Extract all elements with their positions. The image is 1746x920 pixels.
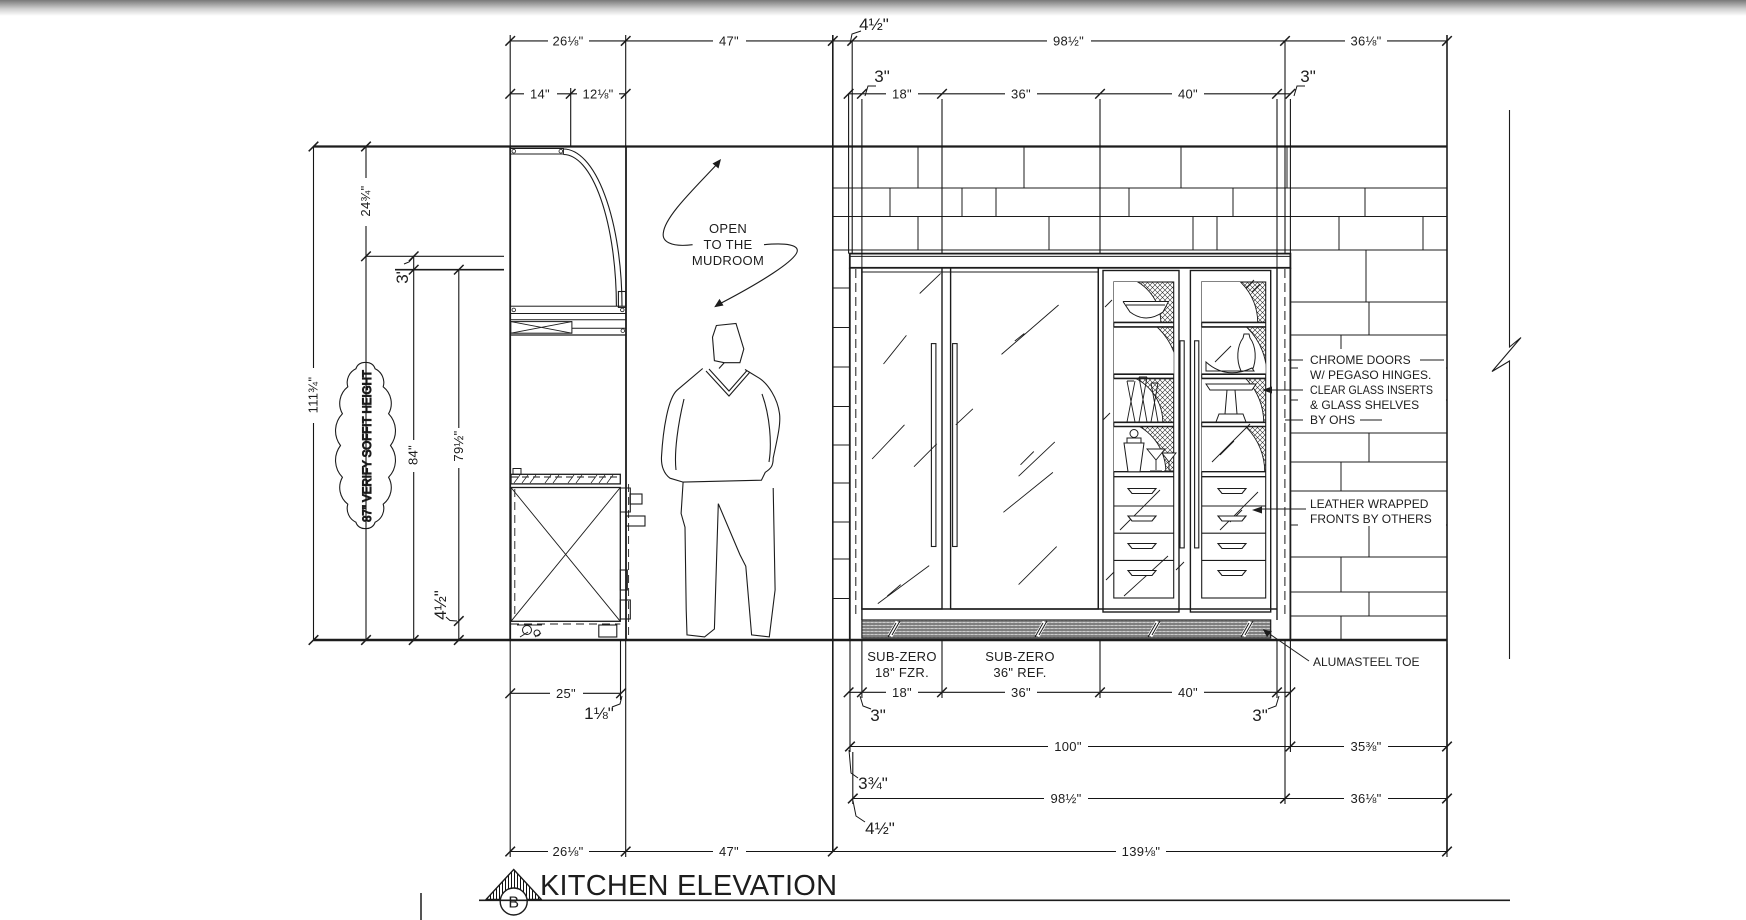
svg-text:18": 18" bbox=[892, 87, 912, 102]
svg-text:40": 40" bbox=[1178, 685, 1198, 700]
svg-text:47": 47" bbox=[719, 844, 739, 859]
svg-text:SUB-ZERO: SUB-ZERO bbox=[867, 649, 937, 664]
svg-text:3¾": 3¾" bbox=[858, 774, 888, 793]
svg-text:18": 18" bbox=[892, 685, 912, 700]
svg-text:MUDROOM: MUDROOM bbox=[692, 253, 764, 268]
svg-text:98½": 98½" bbox=[1053, 34, 1084, 49]
svg-text:CLEAR GLASS INSERTS: CLEAR GLASS INSERTS bbox=[1310, 383, 1433, 397]
svg-text:79½": 79½" bbox=[451, 430, 466, 461]
svg-text:FRONTS BY OTHERS: FRONTS BY OTHERS bbox=[1310, 512, 1432, 526]
svg-text:KITCHEN ELEVATION: KITCHEN ELEVATION bbox=[540, 870, 837, 902]
svg-text:98½": 98½" bbox=[1050, 791, 1081, 806]
svg-text:36": 36" bbox=[1011, 685, 1031, 700]
svg-text:36⅛": 36⅛" bbox=[1350, 791, 1381, 806]
svg-text:1⅛": 1⅛" bbox=[584, 704, 614, 723]
svg-text:47": 47" bbox=[719, 34, 739, 49]
svg-text:4½": 4½" bbox=[859, 15, 889, 34]
svg-text:4½": 4½" bbox=[431, 590, 450, 620]
svg-text:40": 40" bbox=[1178, 87, 1198, 102]
svg-text:36" REF.: 36" REF. bbox=[993, 665, 1046, 680]
svg-text:87" VERIFY SOFFIT HEIGHT: 87" VERIFY SOFFIT HEIGHT bbox=[362, 370, 374, 522]
svg-text:36⅛": 36⅛" bbox=[1350, 34, 1381, 49]
svg-text:TO THE: TO THE bbox=[704, 237, 753, 252]
svg-text:3": 3" bbox=[870, 706, 886, 725]
svg-text:18" FZR.: 18" FZR. bbox=[875, 665, 929, 680]
svg-text:3": 3" bbox=[1300, 67, 1316, 86]
svg-text:36": 36" bbox=[1011, 87, 1031, 102]
svg-text:14": 14" bbox=[530, 87, 550, 102]
svg-text:3": 3" bbox=[1252, 706, 1268, 725]
svg-text:4½": 4½" bbox=[865, 819, 895, 838]
svg-text:26⅛": 26⅛" bbox=[552, 844, 583, 859]
svg-text:35⅜": 35⅜" bbox=[1350, 739, 1381, 754]
svg-text:SUB-ZERO: SUB-ZERO bbox=[985, 649, 1055, 664]
svg-text:BY OHS: BY OHS bbox=[1310, 413, 1355, 427]
svg-text:26⅛": 26⅛" bbox=[552, 34, 583, 49]
svg-text:12⅛": 12⅛" bbox=[582, 87, 613, 102]
svg-text:100": 100" bbox=[1054, 739, 1082, 754]
svg-text:139⅛": 139⅛" bbox=[1122, 844, 1161, 859]
svg-text:LEATHER WRAPPED: LEATHER WRAPPED bbox=[1310, 497, 1429, 511]
svg-text:& GLASS SHELVES: & GLASS SHELVES bbox=[1310, 398, 1419, 412]
svg-text:3": 3" bbox=[874, 67, 890, 86]
svg-text:3": 3" bbox=[393, 268, 412, 284]
svg-text:W/ PEGASO HINGES.: W/ PEGASO HINGES. bbox=[1310, 368, 1431, 382]
svg-text:ALUMASTEEL TOE: ALUMASTEEL TOE bbox=[1313, 655, 1419, 669]
svg-text:84": 84" bbox=[406, 445, 421, 465]
svg-text:B: B bbox=[508, 895, 519, 912]
svg-text:CHROME DOORS: CHROME DOORS bbox=[1310, 353, 1411, 367]
svg-text:111¾": 111¾" bbox=[306, 377, 321, 414]
svg-text:24¾": 24¾" bbox=[358, 185, 373, 216]
svg-text:25": 25" bbox=[556, 686, 576, 701]
svg-text:OPEN: OPEN bbox=[709, 221, 747, 236]
